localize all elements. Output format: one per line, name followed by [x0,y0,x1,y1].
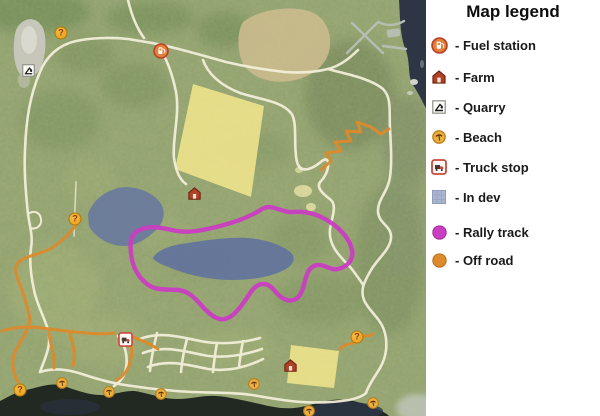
legend-item-rally: - Rally track [430,223,529,241]
legend-item-farm: - Farm [430,68,495,86]
legend-item-label: - Fuel station [455,38,536,53]
legend-item-fuel: - Fuel station [430,36,536,54]
legend-item-label: - In dev [455,190,501,205]
truck-stop-icon [430,159,448,175]
legend-panel: Map legend - Fuel station- Farm- Quarry-… [426,0,600,416]
fuel-station-icon [430,37,448,54]
map-legend-screenshot: ???? Map legend - Fuel station- Farm- Qu… [0,0,600,416]
beach-icon [430,130,448,144]
off-road-swatch [430,253,448,268]
legend-item-label: - Beach [455,130,502,145]
quarry-icon [430,100,448,114]
question-marker: ? [351,331,364,344]
legend-item-quarry: - Quarry [430,98,506,116]
terrain-speckle [0,0,426,416]
legend-item-beach: - Beach [430,128,502,146]
legend-item-indev: - In dev [430,188,501,206]
question-marker: ? [14,384,27,397]
legend-item-label: - Truck stop [455,160,529,175]
legend-title: Map legend [426,2,600,22]
legend-item-label: - Farm [455,70,495,85]
farm-icon [430,69,448,84]
terrain-map-graphic [0,0,426,416]
in-dev-swatch [430,190,448,204]
rally-track-swatch [430,225,448,240]
legend-item-label: - Off road [455,253,514,268]
legend-item-label: - Rally track [455,225,529,240]
question-marker: ? [69,213,82,226]
map-area: ???? [0,0,426,416]
legend-item-truckstop: - Truck stop [430,158,529,176]
legend-item-offroad: - Off road [430,251,514,269]
legend-item-label: - Quarry [455,100,506,115]
question-marker: ? [55,27,68,40]
